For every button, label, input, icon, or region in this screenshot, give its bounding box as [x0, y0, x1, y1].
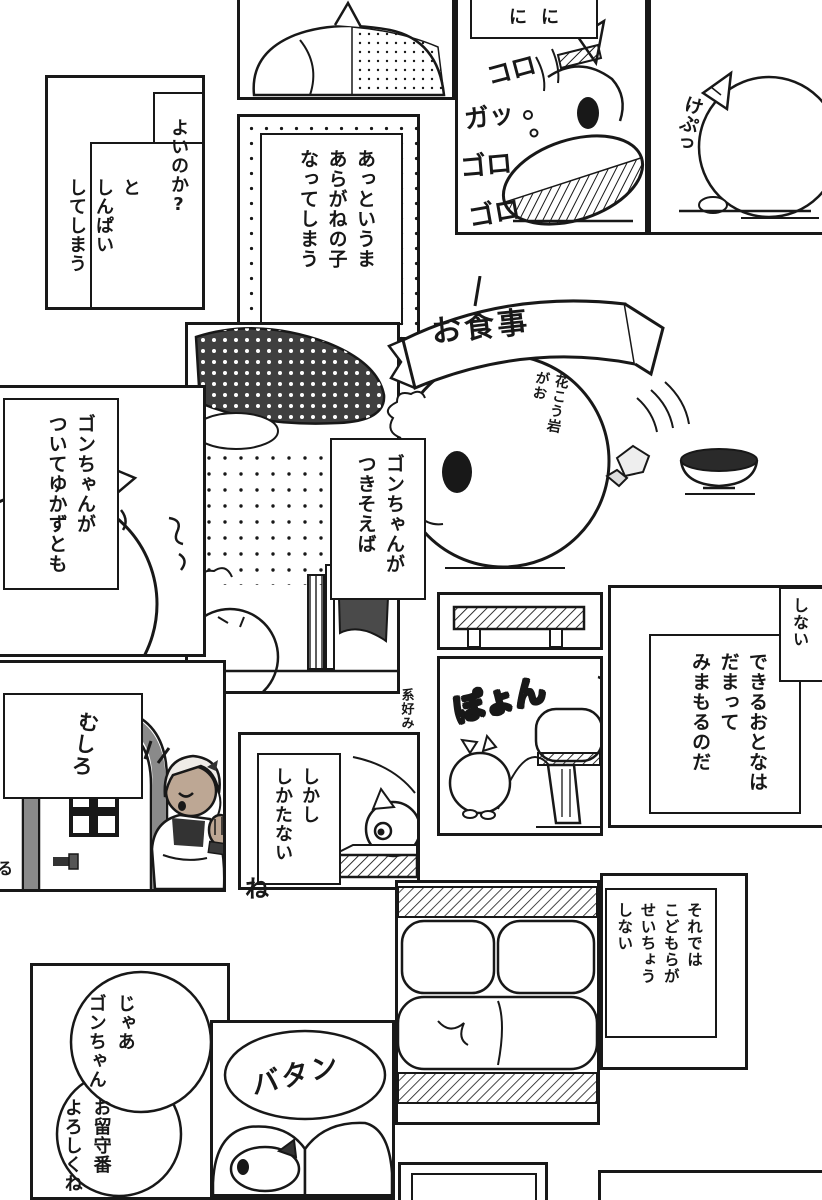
- panel-door: むしろ る: [0, 660, 226, 892]
- resign-text: しかし しかたない: [269, 767, 323, 862]
- panel-hop: ぽょん: [437, 656, 603, 836]
- follow-text: ゴンちゃんが ついてゆかずとも: [42, 414, 99, 574]
- transform-text: あっというま あらがねの子 なってしまう: [294, 149, 380, 269]
- transform-textbox: あっというま あらがねの子 なってしまう: [260, 133, 403, 325]
- grow-text: それでは こどもらが せいちょう しない: [612, 902, 705, 985]
- shinai-fragment-text: しない: [787, 597, 811, 648]
- sfx-ga: ガッ: [462, 94, 517, 137]
- adults-text: できるおとなは だまって みまもるのだ: [686, 652, 772, 792]
- accompany-textbox: ゴンちゃんが つきそえば: [330, 438, 426, 600]
- farewell-head-text: じゃあ ゴンちゃん: [81, 994, 139, 1089]
- sofa-drawing: [398, 883, 597, 1122]
- panel-cushion: [237, 0, 455, 100]
- grow-textbox: それでは こどもらが せいちょう しない: [605, 888, 717, 1038]
- panel-follow: ゴンちゃんが ついてゆかずとも: [0, 385, 206, 657]
- mushiro-text: むしろ: [63, 709, 103, 779]
- meal-scene: お食事 花こう岩 がお: [385, 276, 795, 576]
- panel-tumble: にに コロ ガッ ゴロ ゴロ: [455, 0, 648, 235]
- sleeping-cushion-drawing: [240, 0, 452, 97]
- panel-bottom-right-partial: [598, 1170, 822, 1200]
- panel-batan: バタン: [210, 1020, 395, 1200]
- worry-head-text: よいのか?: [165, 118, 192, 216]
- panel-sofa: [395, 880, 600, 1125]
- panel-chair-sliver: [437, 592, 603, 650]
- chair-sliver-drawing: [440, 595, 600, 647]
- panel-grow: それでは こどもらが せいちょう しない: [600, 873, 748, 1070]
- sfx-ru-fragment: る: [0, 855, 13, 879]
- worry-body-text: と しんぱい してしまう: [63, 178, 144, 273]
- sfx-goro-1: ゴロ: [458, 143, 513, 184]
- resign-textbox: しかし しかたない: [257, 753, 341, 885]
- accompany-text: ゴンちゃんが つきそえば: [351, 454, 408, 574]
- preference-note-fragment: 系好み: [396, 688, 416, 730]
- follow-textbox: ゴンちゃんが ついてゆかずとも: [3, 398, 119, 590]
- panel-farewell: じゃあ ゴンちゃん お留守番 よろしくね: [30, 963, 230, 1200]
- mushiro-textbox: むしろ: [3, 693, 143, 799]
- speech-bubble-top: にに: [470, 0, 598, 39]
- manga-page: よいのか? と しんぱい してしまう あっというま あらがねの子 なってしまう: [0, 0, 822, 1200]
- bottom-mid-inner-box: [411, 1173, 537, 1200]
- panel-burp: けぷっ: [648, 0, 822, 235]
- bubble-top-text: にに: [495, 3, 573, 29]
- panel-bottom-mid-partial: [398, 1162, 548, 1200]
- farewell-body-text: お留守番 よろしくね: [57, 1098, 115, 1193]
- particle-ne-text: ね: [245, 869, 269, 904]
- panel-worry: よいのか? と しんぱい してしまう: [45, 75, 205, 310]
- couch-lying-creature-drawing: [213, 1023, 392, 1197]
- shinai-fragment-box: しない: [779, 587, 822, 682]
- panel-resign: しかし しかたない ね: [238, 732, 420, 890]
